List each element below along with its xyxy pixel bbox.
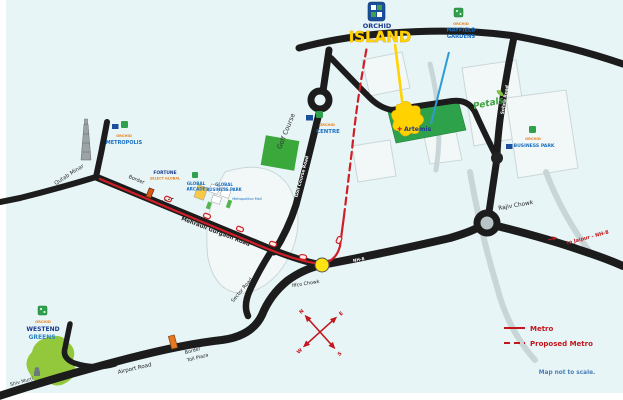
hospital-cross-icon: ✚ — [397, 126, 402, 133]
logo-pattern — [40, 308, 42, 310]
green-logo-icon — [38, 306, 47, 315]
logo-pattern — [377, 12, 382, 17]
fortune-label: FORTUNE SELECT GLOBAL — [150, 170, 181, 181]
shiv-murti-icon — [34, 367, 40, 376]
centre-brand: ORCHID — [319, 123, 335, 127]
artemis-text: Artemis — [404, 126, 432, 133]
golf-roundabout — [311, 91, 329, 109]
statue-base — [34, 371, 40, 376]
green-logo-icon — [316, 111, 323, 118]
map-canvas: ORCHID ISLAND ORCHID MAYFIELD GARDENS ✚ … — [0, 0, 623, 400]
map-background — [6, 0, 623, 393]
gbp-line2: BUSINESS PARK — [206, 187, 242, 192]
logo-pattern — [460, 13, 462, 15]
logo-pattern — [371, 5, 376, 10]
mayfield-line1: MAYFIELD — [446, 28, 476, 34]
logo-pattern — [377, 5, 382, 10]
westend-line1: WESTEND — [26, 326, 59, 333]
arcade-line1: GLOBAL — [187, 181, 206, 186]
blue-flag-icon — [506, 144, 513, 149]
centre-name: CENTRE — [316, 129, 340, 135]
obp-name: BUSINESS PARK — [514, 143, 555, 149]
mayfield-brand: ORCHID — [453, 22, 469, 26]
green-logo-icon — [192, 172, 198, 178]
legend-metro-label: Metro — [530, 325, 554, 333]
fortune-line2: SELECT GLOBAL — [150, 177, 181, 181]
iffco-chowk-circle — [315, 258, 329, 272]
logo-pattern — [371, 12, 376, 17]
arcade-line2: ARCADE — [186, 187, 205, 192]
westend-line2: GREENS — [28, 334, 55, 341]
obp-brand: ORCHID — [525, 137, 541, 141]
legend-proposed-label: Proposed Metro — [530, 340, 593, 348]
green-logo-icon — [121, 121, 128, 128]
sector-block-c2 — [362, 52, 410, 96]
logo-pattern — [456, 10, 458, 12]
metropolis-brand: ORCHID — [116, 134, 132, 138]
tower-top — [84, 119, 87, 124]
metro-station-marker — [299, 254, 307, 260]
logo-pattern — [44, 311, 46, 313]
orchid-logo-icon — [368, 2, 385, 21]
mayfield-line2: GARDENS — [447, 34, 475, 40]
sohna-junction — [491, 152, 503, 164]
green-logo-icon — [529, 126, 536, 133]
metropolitan-mall-label: Metropolitan Mall — [232, 197, 261, 201]
location-map: ORCHID ISLAND ORCHID MAYFIELD GARDENS ✚ … — [0, 0, 623, 400]
green-logo-icon — [454, 8, 463, 17]
westend-brand: ORCHID — [35, 320, 51, 324]
blue-flag-icon — [306, 115, 313, 121]
title-name: ISLAND — [349, 28, 412, 46]
rajiv-chowk-roundabout — [477, 213, 497, 233]
sector-block-ne2 — [506, 90, 578, 178]
map-disclaimer: Map not to scale. — [539, 370, 595, 376]
sector-block-c1 — [352, 140, 396, 182]
metropolis-name: METROPOLIS — [106, 140, 143, 146]
fortune-line1: FORTUNE — [153, 170, 176, 176]
blue-flag-icon — [112, 124, 119, 129]
